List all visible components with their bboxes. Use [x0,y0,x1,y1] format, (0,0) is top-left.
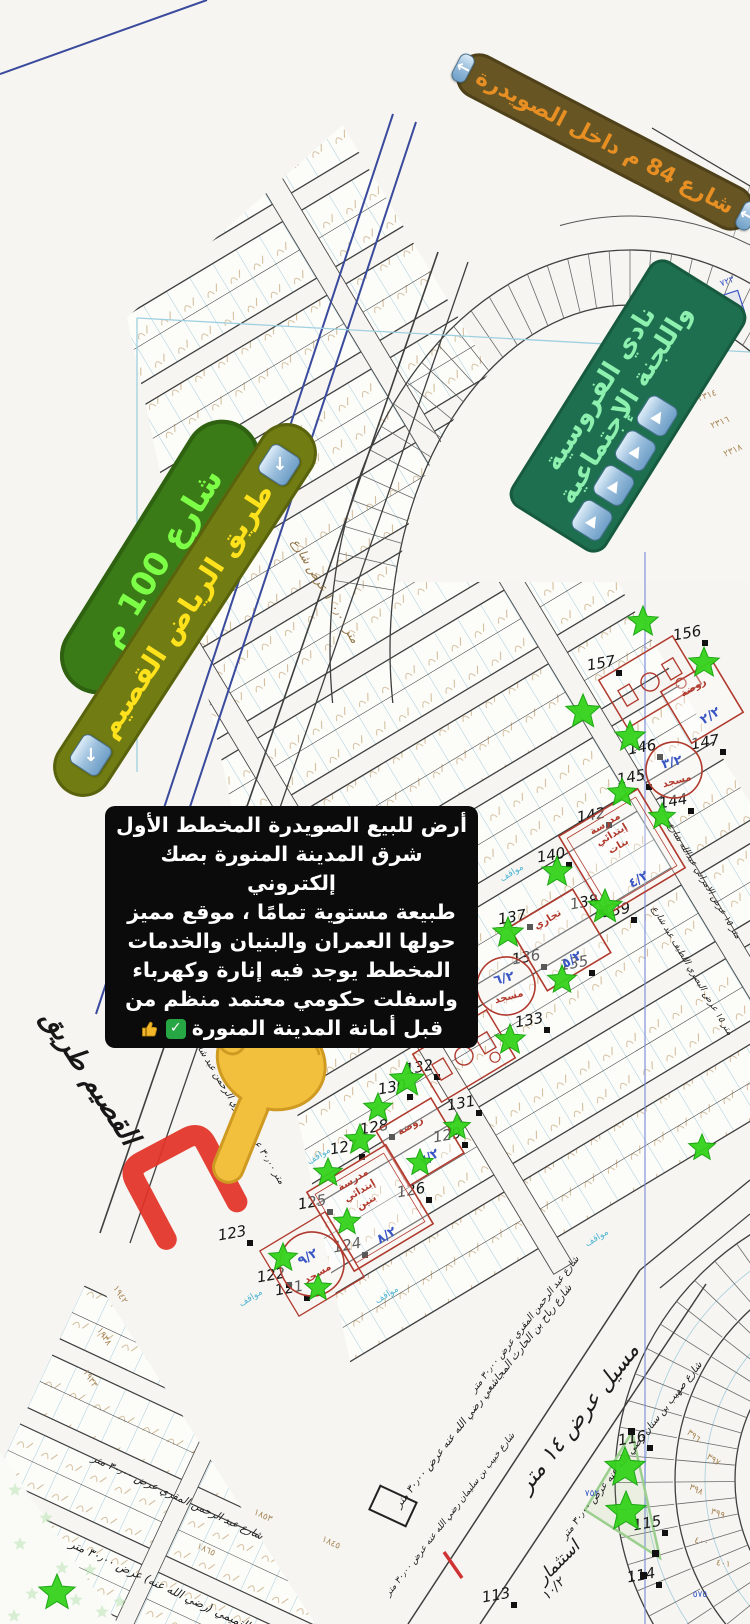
listing-screenshot: متر ١٠٠٫٠٠ عرض شارعالقصيم طريقمتر ٣٠٫٠٠ … [0,0,750,1624]
svg-text:مواقف: مواقف [583,1227,610,1249]
svg-text:شارع خبيب بن سليمان رضي الله ع: شارع خبيب بن سليمان رضي الله عنه عرض ٣٠٫… [383,1431,517,1599]
svg-text:116: 116 [616,1427,647,1450]
svg-text:٥٧٥: ٥٧٥ [693,1590,708,1600]
listing-line: قبل أمانة المدينة المنورة [192,1014,443,1043]
check-mark-icon: ✓ [166,1019,186,1039]
svg-text:٧٥٢: ٧٥٢ [585,1489,600,1499]
arrow-down-icon[interactable]: ↓ [256,441,303,488]
svg-text:113: 113 [480,1584,511,1607]
svg-text:١٨٥٣: ١٨٥٣ [252,1508,274,1525]
arrow-down-icon[interactable]: ↓ [67,732,114,779]
svg-text:٤٠١: ٤٠١ [715,1558,731,1570]
listing-line: المخطط يوجد فيه إنارة وكهرباء [113,956,470,985]
svg-text:٣٩٦: ٣٩٦ [684,1428,702,1445]
svg-text:123: 123 [216,1222,247,1245]
listing-line: طبيعة مستوية تمامًا ، موقع مميز [113,898,470,927]
svg-text:١٨٤٥: ١٨٤٥ [320,1535,342,1552]
listing-line: حولها العمران والبنيان والخدمات [113,927,470,956]
svg-text:٤٠٠: ٤٠٠ [693,1536,709,1549]
svg-text:مواقف: مواقف [237,1287,264,1309]
svg-text:٣٩٨: ٣٩٨ [687,1483,705,1498]
svg-text:114: 114 [625,1564,656,1587]
listing-line: واسفلت حكومي معتمد منظم من [113,985,470,1014]
thumbs-up-icon [140,1019,160,1039]
svg-text:٣٩٧: ٣٩٧ [704,1452,722,1468]
svg-text:٧٢٣: ٧٢٣ [719,275,736,289]
listing-line: أرض للبيع الصويدرة المخطط الأول [113,811,470,840]
arrow-left-icon[interactable]: ← [733,199,750,233]
listing-line: شرق المدينة المنورة بصك إلكتروني [113,840,470,898]
svg-text:١٩٤٢: ١٩٤٢ [110,1284,129,1306]
listing-description-box: أرض للبيع الصويدرة المخطط الأول شرق المد… [105,806,478,1048]
